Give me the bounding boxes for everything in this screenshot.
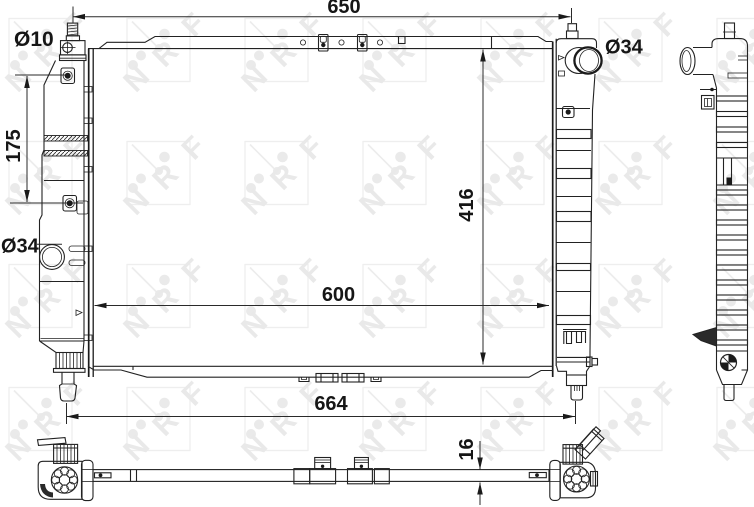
svg-text:16: 16 xyxy=(456,438,478,460)
svg-text:650: 650 xyxy=(327,0,360,18)
svg-text:Ø34: Ø34 xyxy=(605,37,644,59)
svg-text:175: 175 xyxy=(3,129,25,162)
svg-text:Ø34: Ø34 xyxy=(1,236,40,258)
svg-text:Ø10: Ø10 xyxy=(14,28,54,51)
svg-text:664: 664 xyxy=(314,393,348,415)
svg-text:600: 600 xyxy=(322,284,355,306)
svg-text:416: 416 xyxy=(456,188,478,221)
